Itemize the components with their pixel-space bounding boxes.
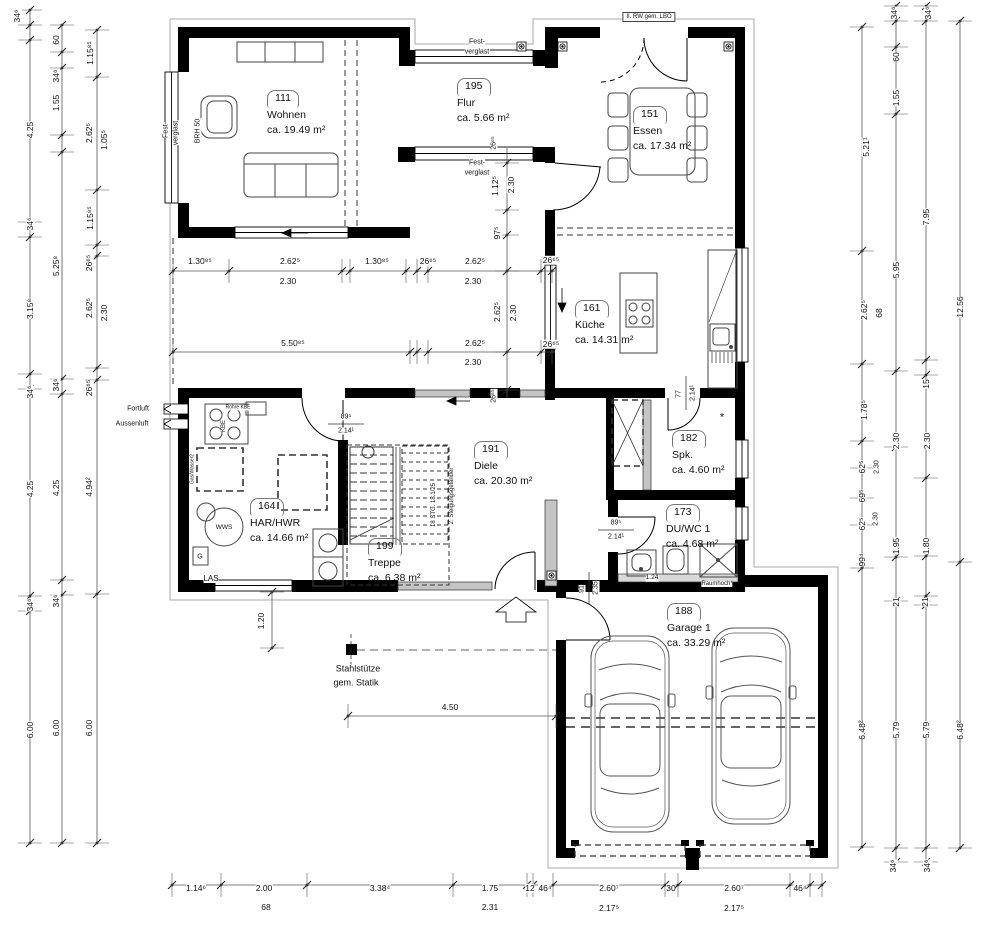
dimension-label: 1.30⁸⁵ — [188, 257, 212, 266]
dimension-label: 34⁶ — [26, 218, 35, 231]
annotation-label: WWS — [216, 525, 233, 532]
dimension-label: 1.78⁵ — [860, 400, 869, 420]
room-label-kueche: 161 Küche ca. 14.31 m² — [575, 300, 633, 349]
dimension-label: 2.30 — [100, 305, 109, 322]
dimension-label: 60 — [892, 52, 901, 61]
dimension-label: 91 — [579, 585, 586, 593]
annotation-label: II. RW gem. LBO — [622, 12, 675, 22]
annotation-label: verglast — [465, 170, 490, 177]
dimension-label: 34⁶ — [890, 7, 899, 20]
dimension-label: 2.30 — [873, 512, 880, 526]
annotation-label: Fest- — [469, 160, 485, 167]
annotation-label: Raumhoch* — [701, 581, 732, 587]
dimension-label: 4.94² — [85, 477, 94, 496]
annotation-label: verglast — [465, 49, 490, 56]
dimension-label: 21 — [892, 597, 901, 606]
dimension-label: 69⁵ — [858, 490, 867, 503]
room-area: ca. 20.30 m² — [474, 474, 532, 490]
room-area: ca. 17.34 m² — [633, 139, 691, 155]
room-label-garage: 188 Garage 1 ca. 33.29 m² — [667, 603, 725, 652]
dimension-label: 2.30 — [280, 277, 297, 286]
dimension-label: 4.25 — [26, 122, 35, 139]
annotation-label: Fest- — [469, 39, 485, 46]
annotation-label: KBE — [221, 420, 227, 432]
dimension-label: 34⁶ — [52, 595, 61, 608]
dimension-label: 62⁵ — [858, 461, 867, 474]
dimension-label: 2.62⁵ — [280, 257, 300, 266]
dimension-label: 26⁶⁵ — [491, 136, 498, 150]
dimension-label: 34⁶ — [52, 70, 61, 83]
dimension-label: 4.25 — [26, 481, 35, 498]
dimension-label: 5.21¹ — [862, 137, 871, 156]
dimension-label: 1.05⁵ — [100, 130, 109, 150]
dimension-label: 99⁴ — [858, 553, 867, 566]
dimension-label: 2.14¹ — [690, 385, 697, 401]
dimension-label: 2.00 — [256, 884, 273, 893]
room-name: Flur — [457, 96, 510, 112]
dimension-label: 26⁶⁵ — [543, 256, 559, 265]
dimension-label: 2.30 — [465, 277, 482, 286]
dimension-label: 1.55 — [892, 90, 901, 107]
room-label-diele: 191 Diele ca. 20.30 m² — [474, 441, 532, 490]
room-number: 111 — [267, 90, 325, 108]
dimension-label: 6.48² — [858, 720, 867, 739]
dimension-label: 2.62⁵ — [860, 300, 869, 320]
dimension-label: 5.79 — [922, 722, 931, 739]
dimension-label: 5.79 — [892, 722, 901, 739]
dimension-label: 1.55 — [52, 95, 61, 112]
room-label-spk: 182 Spk. ca. 4.60 m² — [672, 430, 725, 479]
dimension-label: 2.14¹ — [338, 428, 354, 435]
room-number: 182 — [672, 430, 725, 448]
dimension-label: 2.14¹ — [608, 534, 624, 541]
dimension-label: 5.95 — [892, 262, 901, 279]
room-area: ca. 19.49 m² — [267, 123, 325, 139]
dimension-label: 2.35 — [593, 581, 600, 595]
annotation-label: Fest- — [163, 122, 170, 138]
dimension-label: 2.62⁵ — [465, 339, 485, 348]
room-label-har-hwr: 164 HAR/HWR ca. 14.66 m² — [250, 498, 308, 547]
annotation-label: Gas/Wasser2 — [191, 454, 196, 484]
annotation-label: Rohre KBE — [225, 406, 250, 411]
room-name: HAR/HWR — [250, 516, 308, 532]
dimension-label: 26⁶⁵ — [491, 389, 498, 403]
labels-layer: 111 Wohnen ca. 19.49 m² 195 Flur ca. 5.6… — [0, 0, 1000, 928]
dimension-label: 68 — [261, 903, 270, 912]
room-label-flur: 195 Flur ca. 5.66 m² — [457, 78, 510, 127]
dimension-label: 1.15⁸⁵ — [86, 206, 95, 230]
room-number: 173 — [666, 504, 719, 522]
dimension-label: 3.38⁴ — [370, 884, 390, 893]
dimension-label: 2.17⁵ — [724, 904, 744, 913]
dimension-label: 1.30⁸⁵ — [365, 257, 389, 266]
dimension-label: 21 — [921, 597, 930, 606]
room-label-treppe: 199 Treppe ca. 6.38 m² — [368, 538, 421, 587]
dimension-label: 34⁶ — [52, 379, 61, 392]
dimension-label: 4.25 — [52, 480, 61, 497]
dimension-label: 26⁶⁵ — [420, 257, 436, 266]
room-number: 199 — [368, 538, 421, 556]
room-name: Garage 1 — [667, 621, 725, 637]
dimension-label: 77 — [676, 390, 683, 398]
dimension-label: 5.25⁸ — [52, 256, 61, 276]
room-area: ca. 4.68 m² — [666, 537, 719, 553]
dimension-label: 1.95 — [892, 538, 901, 555]
dimension-label: 34⁶ — [26, 386, 35, 399]
dimension-label: 2.30 — [892, 433, 901, 450]
annotation-label: LAS — [203, 575, 218, 583]
room-area: ca. 33.29 m² — [667, 636, 725, 652]
dimension-label: 1.24 — [646, 575, 659, 582]
dimension-label: 12.56 — [956, 296, 965, 317]
dimension-label: 46⁴ — [538, 884, 551, 893]
dimension-label: 89⁵ — [341, 414, 352, 421]
dimension-label: 1.20 — [257, 613, 266, 630]
dimension-label: 26⁶⁵ — [543, 340, 559, 349]
dimension-label: 1.14⁶ — [186, 884, 206, 893]
dimension-label: 1.80 — [922, 538, 931, 555]
dimension-label: 2.62⁵ — [493, 302, 502, 322]
room-name: Wohnen — [267, 108, 325, 124]
dimension-label: 6.00 — [85, 720, 94, 737]
dimension-label: 6.00 — [26, 722, 35, 739]
dimension-label: 34⁶ — [923, 860, 932, 873]
room-area: ca. 4.60 m² — [672, 463, 725, 479]
dimension-label: 26⁶⁵ — [85, 380, 94, 396]
dimension-label: 68 — [875, 308, 884, 317]
dimension-label: 97⁵ — [493, 227, 502, 240]
annotation-label: * — [720, 413, 724, 424]
annotation-label: Aussenluft — [116, 421, 149, 428]
annotation-label: G — [197, 554, 202, 561]
dimension-label: 2.30 — [923, 433, 932, 450]
dimension-label: 6.00 — [52, 720, 61, 737]
room-area: ca. 5.66 m² — [457, 111, 510, 127]
room-name: Essen — [633, 124, 691, 140]
dimension-label: 3.15⁸ — [26, 299, 35, 319]
room-number: 164 — [250, 498, 308, 516]
room-name: DU/WC 1 — [666, 522, 719, 538]
dimension-label: 30 — [666, 884, 675, 893]
dimension-label: 34⁶ — [13, 10, 22, 23]
dimension-label: 62⁵ — [858, 518, 867, 531]
dimension-label: 12 — [525, 884, 534, 893]
dimension-label: 2.30 — [465, 358, 482, 367]
annotation-label: Fortluft — [127, 406, 149, 413]
dimension-label: 2.62⁵ — [465, 257, 485, 266]
room-number: 161 — [575, 300, 633, 318]
dimension-label: 1.75 — [482, 884, 499, 893]
annotation-label: BRH 50 — [195, 119, 202, 144]
dimension-label: 2.30 — [507, 177, 516, 194]
room-area: ca. 14.31 m² — [575, 333, 633, 349]
room-label-essen: 151 Essen ca. 17.34 m² — [633, 106, 691, 155]
floor-plan: 111 Wohnen ca. 19.49 m² 195 Flur ca. 5.6… — [0, 0, 1000, 928]
room-number: 195 — [457, 78, 510, 96]
dimension-label: 15 — [922, 379, 931, 388]
room-name: Küche — [575, 318, 633, 334]
dimension-label: 4.50 — [442, 703, 459, 712]
annotation-label: 18 STG. 18.1/25 — [431, 483, 437, 527]
room-name: Spk. — [672, 448, 725, 464]
dimension-label: 46⁴ — [793, 884, 806, 893]
dimension-label: 89⁵ — [611, 520, 622, 527]
dimension-label: 34⁶ — [889, 860, 898, 873]
dimension-label: 5.50⁸⁵ — [281, 339, 305, 348]
dimension-label: 2.60⁷ — [599, 884, 619, 893]
room-label-du-wc: 173 DU/WC 1 ca. 4.68 m² — [666, 504, 719, 553]
dimension-label: 34⁶ — [26, 599, 35, 612]
dimension-label: 2.62⁵ — [85, 123, 94, 143]
annotation-label: gem. Statik — [333, 679, 378, 688]
dimension-label: 2.30 — [509, 305, 518, 322]
dimension-label: 2.62⁵ — [85, 298, 94, 318]
annotation-label: 2. Steigungsgeländer — [449, 468, 455, 525]
dimension-label: 7.95 — [922, 209, 931, 226]
dimension-label: 60 — [52, 35, 61, 44]
dimension-label: 34⁶ — [924, 7, 933, 20]
dimension-label: 2.31 — [482, 903, 499, 912]
room-label-wohnen: 111 Wohnen ca. 19.49 m² — [267, 90, 325, 139]
room-number: 188 — [667, 603, 725, 621]
dimension-label: 26⁶⁵ — [85, 255, 94, 271]
room-name: Diele — [474, 459, 532, 475]
room-number: 151 — [633, 106, 691, 124]
annotation-label: verglast — [173, 121, 180, 146]
room-number: 191 — [474, 441, 532, 459]
dimension-label: 2.30 — [874, 460, 881, 474]
dimension-label: 1.12⁵ — [491, 176, 500, 196]
room-name: Treppe — [368, 556, 421, 572]
dimension-label: 2.60⁷ — [724, 884, 744, 893]
annotation-label: Stahlstütze — [336, 665, 381, 674]
dimension-label: 2.17⁵ — [599, 904, 619, 913]
room-area: ca. 14.66 m² — [250, 531, 308, 547]
dimension-label: 1.15⁸⁵ — [86, 41, 95, 65]
room-area: ca. 6.38 m² — [368, 571, 421, 587]
dimension-label: 6.48² — [956, 720, 965, 739]
